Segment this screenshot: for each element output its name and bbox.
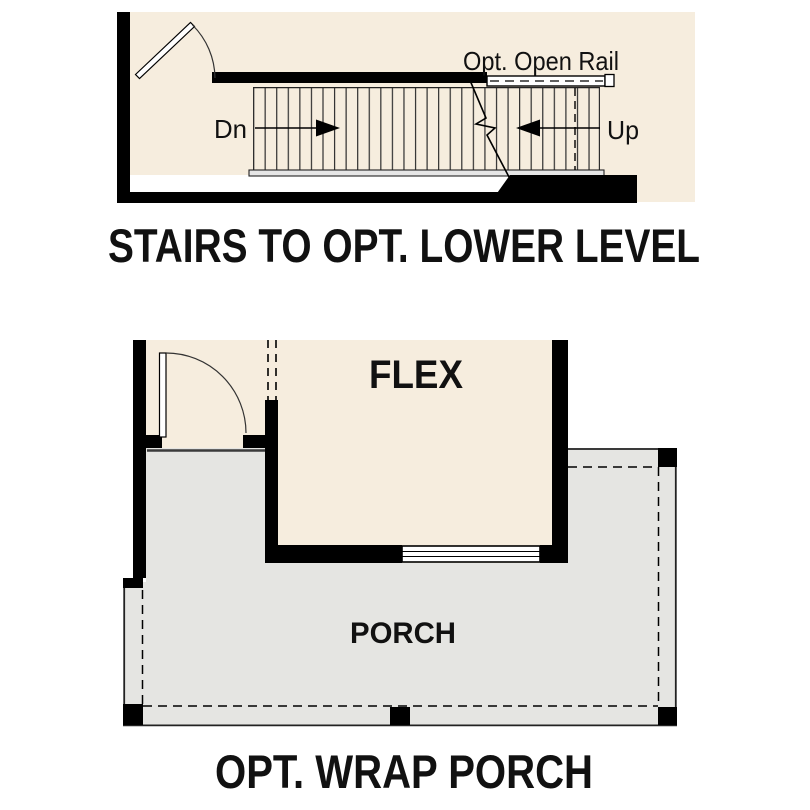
porch-label: PORCH xyxy=(350,617,456,650)
porch-post-bottom-right xyxy=(658,707,677,725)
wall-lower-landing xyxy=(490,175,637,203)
porch-post-bottom-left xyxy=(123,704,143,725)
wall-entry-left-cap xyxy=(123,578,143,588)
window-icon xyxy=(402,546,540,562)
wall-flex-right xyxy=(552,340,568,563)
floor-plan-page: Dn Up Opt. Open Rail STAIRS TO OPT. LOWE… xyxy=(0,0,810,810)
wall-flex-bottom-left xyxy=(265,545,402,563)
lower-landing-strip xyxy=(130,175,508,192)
wall-entry-left xyxy=(133,340,146,578)
stairs-diagram: Dn Up Opt. Open Rail STAIRS TO OPT. LOWE… xyxy=(108,12,700,272)
up-label: Up xyxy=(607,115,639,145)
porch-post-top-right xyxy=(658,448,677,467)
floor-plan-graphic: Dn Up Opt. Open Rail STAIRS TO OPT. LOWE… xyxy=(0,0,810,810)
wall-flex-left xyxy=(265,400,278,563)
stairs-title: STAIRS TO OPT. LOWER LEVEL xyxy=(108,219,700,272)
wall-stairwell-top xyxy=(212,72,487,83)
open-rail-end-post xyxy=(605,75,614,87)
wrap-porch-diagram: FLEX PORCH OPT. WRAP PORCH xyxy=(123,340,677,798)
porch-post-bottom-middle xyxy=(390,707,410,725)
entry-door-leaf-icon xyxy=(160,353,167,437)
porch-title: OPT. WRAP PORCH xyxy=(215,745,593,798)
open-rail-label: Opt. Open Rail xyxy=(463,46,619,76)
flex-room-label: FLEX xyxy=(369,353,463,397)
dn-label: Dn xyxy=(214,114,247,144)
wall-left xyxy=(117,12,130,203)
